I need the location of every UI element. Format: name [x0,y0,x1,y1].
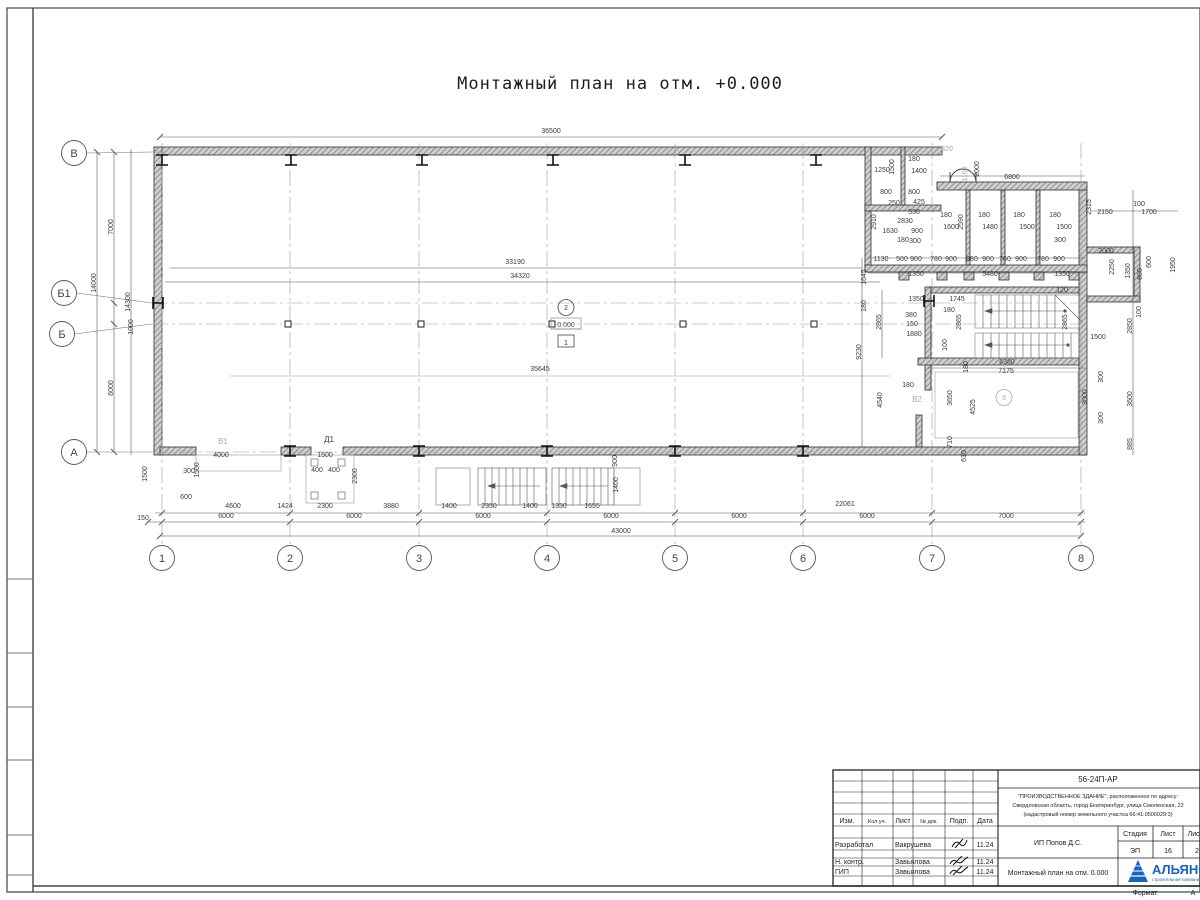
dim-label: 6000 [346,513,362,520]
dim-label: 400 [311,467,323,474]
tb-role-gip: ГИП [835,869,849,876]
page-title: Монтажный план на отм. +0.000 [457,74,783,94]
dim-label: 1500 [142,466,149,482]
dim-label: 180 [943,307,955,314]
tb-project-line3: (кадастровый номер земельного участка 66… [1023,811,1172,818]
dim-label: 900 [982,256,994,263]
dim-label: 180 [940,212,952,219]
dim-label: 880 [966,256,978,263]
dim-label: 6000 [603,513,619,520]
dim-label: 1500 [317,452,333,459]
dim-label: 300 [1098,412,1105,424]
dim-label: 100 [942,339,949,351]
plan-label: В1 [218,437,228,446]
dim-label: 2000 [1098,248,1114,255]
dim-label: 1130 [873,256,888,263]
dim-label: 2590 [958,214,965,230]
dim-label: 500 [896,256,908,263]
dim-label: 380 [905,312,917,319]
dim-label: 1480 [982,224,998,231]
dim-label: 1400 [522,503,538,510]
dim-label: 180 [861,300,868,312]
logo-subtext: строительная компания [1152,877,1200,882]
dim-label: 2865 [956,314,963,330]
dim-label: 180 [963,361,970,373]
ibeam-column-icon [416,155,428,165]
dim-label: 780 [1037,256,1049,263]
dim-label: 710 [947,436,954,448]
dim-label: 4000 [213,452,229,459]
dim-label: 9230 [856,344,863,360]
tb-col-list: Лист [895,818,911,825]
dim-label: 1630 [882,228,898,235]
tb-client: ИП Попов Д.С. [1034,840,1082,847]
dim-label: 4525 [970,399,977,415]
dim-label: 14000 [91,273,98,293]
signature-icon [950,839,968,875]
dim-label: 300 [909,238,921,245]
dim-label: 820 [941,146,953,153]
square-column-icon [549,321,555,327]
dim-label: 3880 [383,503,399,510]
dim-label: 180 [902,382,914,389]
title-block: Изм. Кол.уч. Лист № док. Подп. Дата Разр… [833,770,1200,897]
dim-label: 1500 [1019,224,1035,231]
dim-label: 760 [999,256,1011,263]
dim-label: 35645 [530,366,550,373]
dim-label: 600 [180,494,192,501]
square-column-icon [285,321,291,327]
dim-label: 1645 [861,269,868,285]
dim-label: 900 [612,455,619,467]
dim-label: 900 [945,256,957,263]
dim-label: 1250 [874,167,890,174]
dim-label: 2315 [1086,199,1093,215]
dim-label: 6000 [731,513,747,520]
dim-label: 1400 [613,477,620,493]
dim-label: 2150 [1097,209,1113,216]
dim-label: 180 [908,156,920,163]
dim-label: 4540 [877,392,884,408]
ibeam-column-icon [810,155,822,165]
dim-label: 100 [1136,306,1143,318]
tb-sheet-title: Монтажный план на отм. 0.000 [1008,869,1109,877]
dim-label: 1350 [908,296,924,303]
ibeam-column-icon [285,155,297,165]
plan-label: 2 [564,305,568,312]
dim-label: 100 [1133,201,1145,208]
plan-label: В2 [912,395,922,404]
dim-label: 120 [1056,287,1068,294]
dim-label: 180 [1049,212,1061,219]
dim-label: 530 [908,209,920,216]
dim-label: 5480 [982,271,998,278]
tb-col-data: Дата [977,818,993,825]
tb-col-koluch: Кол.уч. [868,819,886,825]
tb-date-gip: 11.24 [977,869,994,876]
axis-label: 5 [672,553,678,565]
axis-label: Б [58,329,65,341]
tb-col-izm: Изм. [840,818,855,825]
dim-label: 7000 [108,219,115,235]
dim-label: 36500 [541,128,561,135]
dim-label: 4600 [225,503,241,510]
tb-name-developer: Вакрушева [895,842,931,849]
dim-label: 2865 [876,314,883,330]
tb-name-gip: Завьялова [895,869,930,876]
dim-label: 900 [1053,256,1065,263]
dim-label: 1745 [949,296,965,303]
axis-label: А [70,447,78,459]
dim-label: 2300 [317,503,333,510]
dim-label: 3650 [947,390,954,406]
dim-label: 1400 [911,168,927,175]
dim-label: 2000 [974,161,981,177]
dim-label: 2250 [1109,259,1116,275]
dim-label: 6800 [1004,174,1020,181]
dim-label: 6000 [859,513,875,520]
dim-label: 3000 [1082,389,1089,405]
tb-project-line1: "ПРОИЗВОДСТВЕННОЕ ЗДАНИЕ", расположенное… [1018,794,1179,800]
tb-stage-value: ЭП [1130,848,1140,855]
dim-label: 1655 [584,503,600,510]
dim-label: 1500 [194,462,201,478]
ibeam-column-icon [679,155,691,165]
tb-name-ncontrol: Завьялова [895,859,930,866]
dim-label: 180 [897,237,909,244]
dim-label: 1500 [1090,334,1106,341]
format-label: Формат [1133,890,1159,897]
dim-label: 14300 [125,292,132,312]
dim-label: 6380 [999,359,1015,366]
dim-label: 34320 [510,273,530,280]
square-column-icon [680,321,686,327]
tb-role-developer: Разработал [835,841,873,849]
dim-label: 1000 [128,319,135,335]
plan-svg: Монтажный план на отм. +0.000 АЛЬЯНС СТР… [0,0,1200,900]
dim-label: 2850 [1127,318,1134,334]
dim-label: 1350 [1054,271,1070,278]
ibeam-column-icon [547,155,559,165]
dim-label: 900 [911,228,923,235]
dim-label: 22061 [835,501,855,508]
tb-sheet-label: Лист [1160,831,1176,838]
dim-label: 150 [906,321,918,328]
dim-label: 1950 [1170,257,1177,273]
dim-label: 43000 [611,528,631,535]
dim-label: 1880 [906,331,922,338]
axis-label: 2 [287,553,293,565]
dim-label: 610 [961,450,968,462]
dim-label: 425 [913,199,925,206]
square-column-icon [418,321,424,327]
dim-label: 33190 [505,259,525,266]
dim-label: 600 [1146,256,1153,268]
tb-sheets-value: 2 [1195,848,1199,855]
axis-label: 8 [1078,553,1084,565]
dim-label: 400 [328,467,340,474]
dim-label: 6000 [218,513,234,520]
dim-label: 1700 [1141,209,1157,216]
square-column-icon [811,321,817,327]
dim-label: 1350 [908,271,924,278]
tb-role-ncontrol: Н. контр. [835,859,864,866]
dim-label: 150 [137,515,149,522]
dim-label: 1350 [1125,263,1132,279]
plan-labels: В1Д1В220.00013 [218,300,1012,447]
columns [153,155,934,456]
dim-label: 300 [1054,237,1066,244]
plan-label: 3 [1002,395,1006,402]
dim-label: 900 [910,256,922,263]
dim-label: 7000 [998,513,1014,520]
tb-stage-label: Стадия [1123,831,1147,838]
axis-label: 6 [800,553,806,565]
logo-text: АЛЬЯНС [1152,862,1200,877]
tb-col-podp: Подп. [950,818,969,825]
dim-label: 6000 [108,380,115,396]
dim-label: 180 [1013,212,1025,219]
dim-label: 7175 [998,368,1014,375]
drawing-sheet: Монтажный план на отм. +0.000 АЛЬЯНС СТР… [0,0,1200,900]
dim-label: 780 [930,256,942,263]
dim-label: 600 [1137,268,1144,280]
axis-label: В [70,148,77,160]
stairs-exterior [196,455,640,505]
dimension-lines [94,134,1178,539]
dim-label: 1500 [1056,224,1072,231]
dim-label: 6000 [475,513,491,520]
dim-label: 1330 [551,503,567,510]
dim-label: 2300 [352,468,359,484]
tb-date-ncontrol: 11.24 [977,859,994,866]
dim-label: 1100 [962,166,969,181]
tb-sheets-label: Листов [1188,831,1200,838]
dim-label: 300 [1098,371,1105,383]
dim-label: 250 [888,200,900,207]
tb-project-line2: Свердловская область, город Екатеринбург… [1012,803,1183,809]
tb-sheet-value: 16 [1164,848,1172,855]
company-logo: АЛЬЯНС строительная компания [1128,860,1200,882]
axis-label: 7 [929,553,935,565]
axis-label: 1 [159,553,165,565]
dim-label: 2910 [871,214,878,230]
dim-label: 800 [880,189,892,196]
axis-label: 3 [416,553,422,565]
tb-date-developer: 11.24 [977,842,994,849]
dim-label: 900 [1015,256,1027,263]
dim-label: 180 [978,212,990,219]
tb-doc-number: 56-24П-АР [1078,775,1118,784]
dim-label: 1400 [441,503,457,510]
dim-label: 1424 [277,503,293,510]
tb-col-ndok: № док. [920,819,938,825]
dim-label: 1500 [889,159,896,175]
dim-label: 800 [908,189,920,196]
axis-label: Б1 [57,288,70,300]
dim-label: 2350 [481,503,497,510]
dim-label: 2830 [897,218,913,225]
dim-label: 1600 [943,224,959,231]
plan-label: 0.000 [557,322,575,329]
axis-label: 4 [544,553,550,565]
dim-label: 3600 [1127,391,1134,407]
dim-label: 2865 [1062,314,1069,330]
plan-label: Д1 [324,435,334,444]
walls [154,147,1140,455]
format-value: А [1191,890,1196,897]
dim-label: 885 [1127,438,1134,450]
plan-label: 1 [564,340,568,347]
